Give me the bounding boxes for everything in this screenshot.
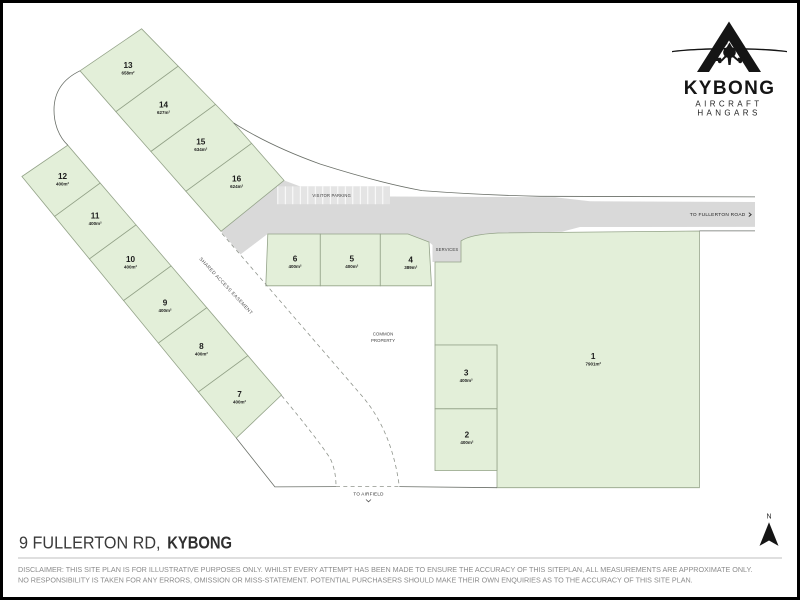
- svg-text:14: 14: [159, 101, 169, 110]
- svg-text:16: 16: [232, 175, 242, 184]
- svg-text:400m²: 400m²: [288, 264, 302, 269]
- svg-text:400m²: 400m²: [56, 182, 70, 187]
- svg-text:N: N: [766, 514, 771, 521]
- svg-text:DISCLAIMER: THIS SITE PLAN IS: DISCLAIMER: THIS SITE PLAN IS FOR ILLUST…: [18, 565, 752, 574]
- svg-text:13: 13: [123, 61, 133, 70]
- svg-text:400m²: 400m²: [460, 378, 474, 383]
- svg-text:400m²: 400m²: [195, 351, 209, 356]
- svg-text:15: 15: [196, 137, 206, 146]
- svg-text:400m²: 400m²: [89, 221, 103, 226]
- svg-text:627m²: 627m²: [157, 110, 171, 115]
- svg-text:3: 3: [464, 369, 469, 378]
- svg-text:400m²: 400m²: [124, 264, 138, 269]
- svg-text:10: 10: [126, 255, 136, 264]
- svg-text:COMMON: COMMON: [373, 331, 394, 336]
- svg-text:TO AIRFIELD: TO AIRFIELD: [353, 492, 384, 497]
- svg-text:4: 4: [408, 255, 413, 264]
- svg-text:12: 12: [58, 172, 68, 181]
- svg-text:6: 6: [293, 255, 298, 264]
- svg-text:389m²: 389m²: [404, 265, 418, 270]
- svg-text:KYBONG: KYBONG: [167, 533, 232, 553]
- svg-text:7901m²: 7901m²: [585, 361, 601, 366]
- svg-text:AIRCRAFT: AIRCRAFT: [695, 100, 762, 109]
- svg-text:2: 2: [465, 431, 470, 440]
- svg-text:HANGARS: HANGARS: [697, 109, 760, 118]
- svg-text:VISITOR PARKING: VISITOR PARKING: [312, 193, 351, 198]
- svg-text:634m²: 634m²: [194, 147, 208, 152]
- svg-text:TO FULLERTON ROAD: TO FULLERTON ROAD: [690, 212, 746, 218]
- svg-text:5: 5: [350, 255, 355, 264]
- svg-text:400m²: 400m²: [460, 440, 474, 445]
- svg-text:400m²: 400m²: [158, 308, 172, 313]
- svg-text:1: 1: [591, 352, 596, 361]
- svg-text:SERVICES: SERVICES: [436, 247, 459, 252]
- svg-text:NO RESPONSIBILITY IS TAKEN FOR: NO RESPONSIBILITY IS TAKEN FOR ANY ERROR…: [18, 575, 693, 584]
- svg-text:8: 8: [199, 342, 204, 351]
- svg-text:658m²: 658m²: [121, 71, 135, 76]
- svg-text:PROPERTY: PROPERTY: [371, 338, 395, 343]
- svg-text:400m²: 400m²: [345, 264, 359, 269]
- svg-text:7: 7: [237, 390, 242, 399]
- svg-text:624m²: 624m²: [230, 184, 244, 189]
- svg-text:400m²: 400m²: [233, 399, 247, 404]
- svg-text:KYBONG: KYBONG: [684, 78, 776, 99]
- svg-text:9 FULLERTON RD,: 9 FULLERTON RD,: [19, 533, 161, 553]
- svg-text:9: 9: [163, 298, 168, 307]
- svg-text:11: 11: [91, 212, 100, 221]
